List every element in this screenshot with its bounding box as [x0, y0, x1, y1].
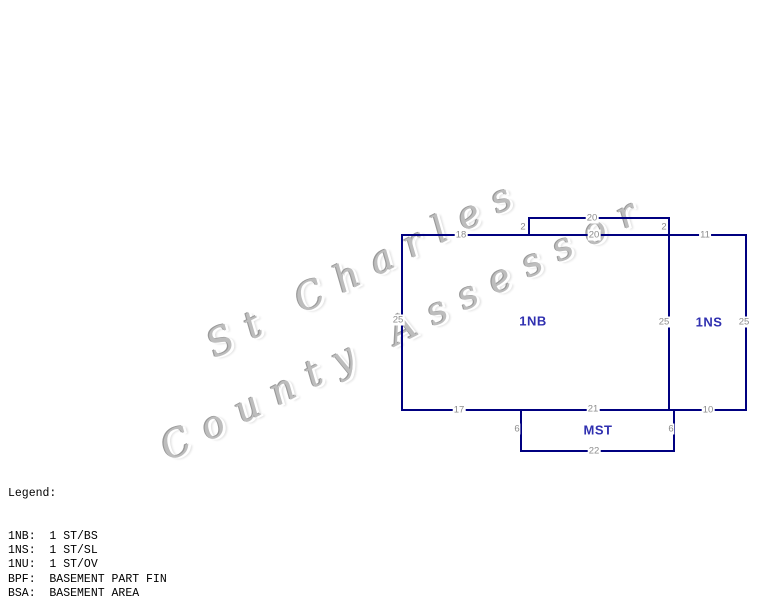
dimension-label: 20 — [588, 230, 601, 241]
legend-code: 1NU: — [8, 558, 49, 572]
dimension-label: 25 — [658, 317, 671, 328]
legend-rows: 1NB:1 ST/BS1NS:1 ST/SL1NU:1 ST/OVBPF:BAS… — [8, 530, 229, 601]
dimension-label: 25 — [738, 317, 751, 328]
legend-entry: BPF:BASEMENT PART FIN — [8, 573, 229, 587]
dimension-label: 11 — [699, 230, 711, 241]
area-label-mst: MST — [584, 423, 613, 438]
dimension-label: 21 — [587, 404, 600, 415]
dimension-label: 20 — [586, 213, 599, 224]
dimension-label: 25 — [392, 315, 405, 326]
legend-entry: BSA:BASEMENT AREA — [8, 587, 229, 601]
dimension-label: 10 — [702, 405, 715, 416]
dimension-label: 2 — [519, 222, 526, 233]
legend: Legend: 1NB:1 ST/BS1NS:1 ST/SL1NU:1 ST/O… — [8, 459, 229, 601]
legend-description: 1 ST/SL — [49, 544, 97, 557]
area-label-1ns: 1NS — [696, 315, 723, 330]
legend-description: 1 ST/OV — [49, 558, 97, 571]
legend-code: 1NB: — [8, 530, 49, 544]
legend-code: BSA: — [8, 587, 49, 601]
dimension-label: 18 — [455, 230, 468, 241]
dimension-label: 17 — [453, 405, 466, 416]
legend-entry: 1NU:1 ST/OV — [8, 558, 229, 572]
legend-title: Legend: — [8, 487, 229, 501]
legend-description: 1 ST/BS — [49, 530, 97, 543]
legend-entry: 1NS:1 ST/SL — [8, 544, 229, 558]
property-sketch-page: St Charles County Assessor 1NB1NSMST1822… — [0, 0, 762, 601]
dimension-label: 6 — [513, 424, 520, 435]
dimension-label: 22 — [588, 446, 601, 457]
legend-description: BASEMENT AREA — [49, 587, 139, 600]
legend-description: BASEMENT PART FIN — [49, 573, 166, 586]
legend-entry: 1NB:1 ST/BS — [8, 530, 229, 544]
legend-code: BPF: — [8, 573, 49, 587]
legend-code: 1NS: — [8, 544, 49, 558]
dimension-label: 2 — [660, 222, 667, 233]
dimension-label: 6 — [667, 424, 674, 435]
area-label-1nb: 1NB — [519, 314, 547, 329]
